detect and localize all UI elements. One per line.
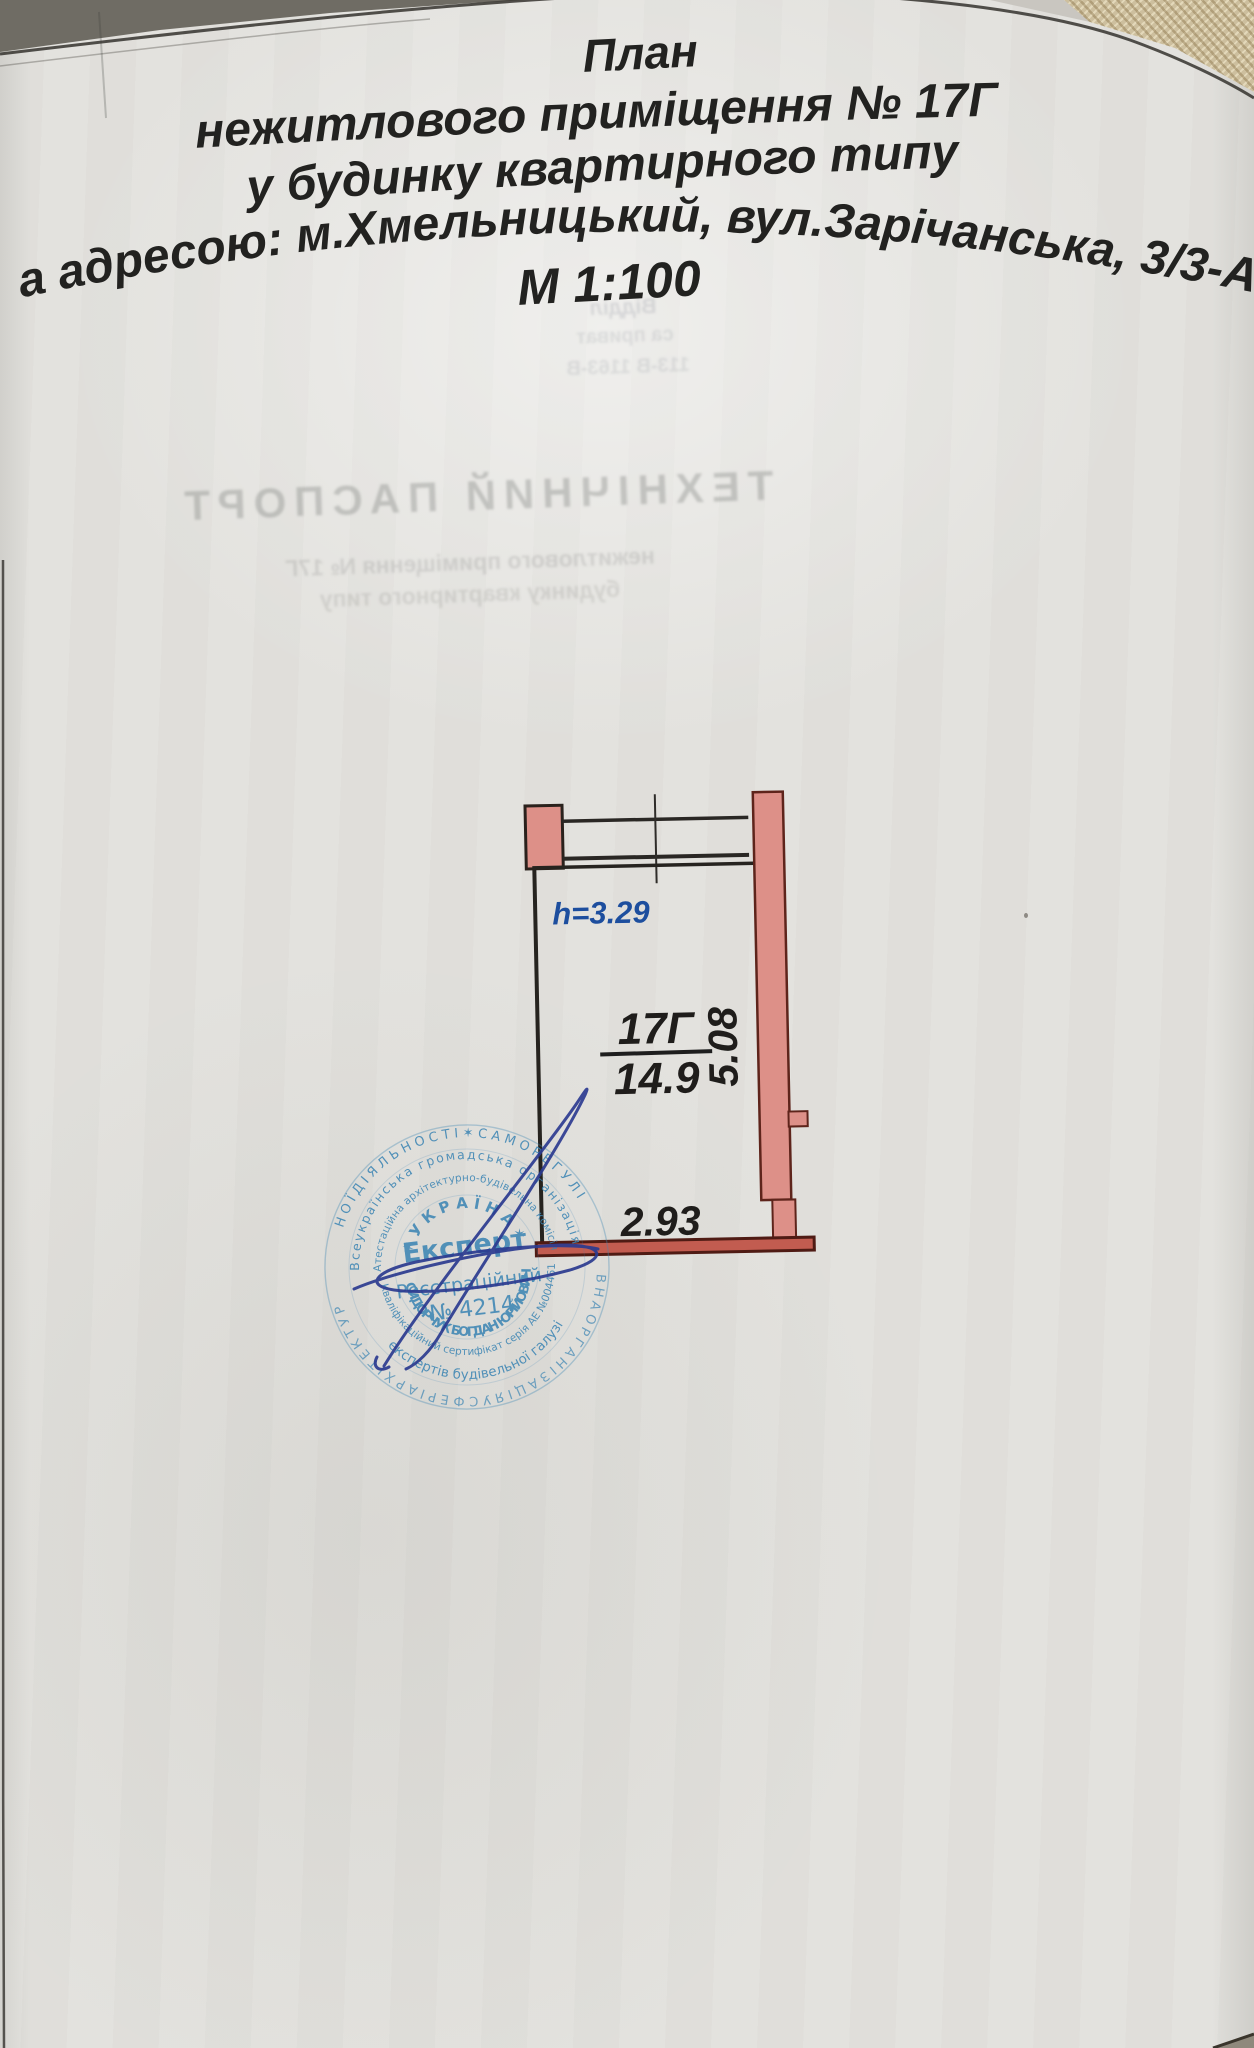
wall-right xyxy=(753,792,792,1201)
wall-right-stub xyxy=(788,1111,807,1126)
header-title-line-1: План xyxy=(581,24,699,82)
dimension-depth-label: 5.08 xyxy=(699,1006,747,1087)
wall-right-lower xyxy=(772,1199,796,1239)
room-area-label: 14.9 xyxy=(613,1053,700,1104)
page-left-edge-line xyxy=(2,560,4,2048)
page-fold-line xyxy=(99,12,106,118)
wall-pier-top-left xyxy=(525,805,563,869)
room-number-label: 17Г xyxy=(617,1003,696,1054)
header-scale-line: М 1:100 xyxy=(516,250,702,316)
document-header: План нежитлового приміщення № 17Г у буди… xyxy=(0,0,1254,316)
dimension-width-label: 2.93 xyxy=(619,1197,701,1245)
ceiling-height-label: h=3.29 xyxy=(552,894,651,931)
page-photo: ТЕХНІЧНИЙ ПАСПОРТ нежитлового приміщення… xyxy=(0,0,1254,2048)
wall-top-line xyxy=(532,863,754,868)
page-top-edge-secondary xyxy=(0,19,430,66)
document-artwork: План нежитлового приміщення № 17Г у буди… xyxy=(0,0,1254,2048)
window-center-tick xyxy=(655,794,657,883)
